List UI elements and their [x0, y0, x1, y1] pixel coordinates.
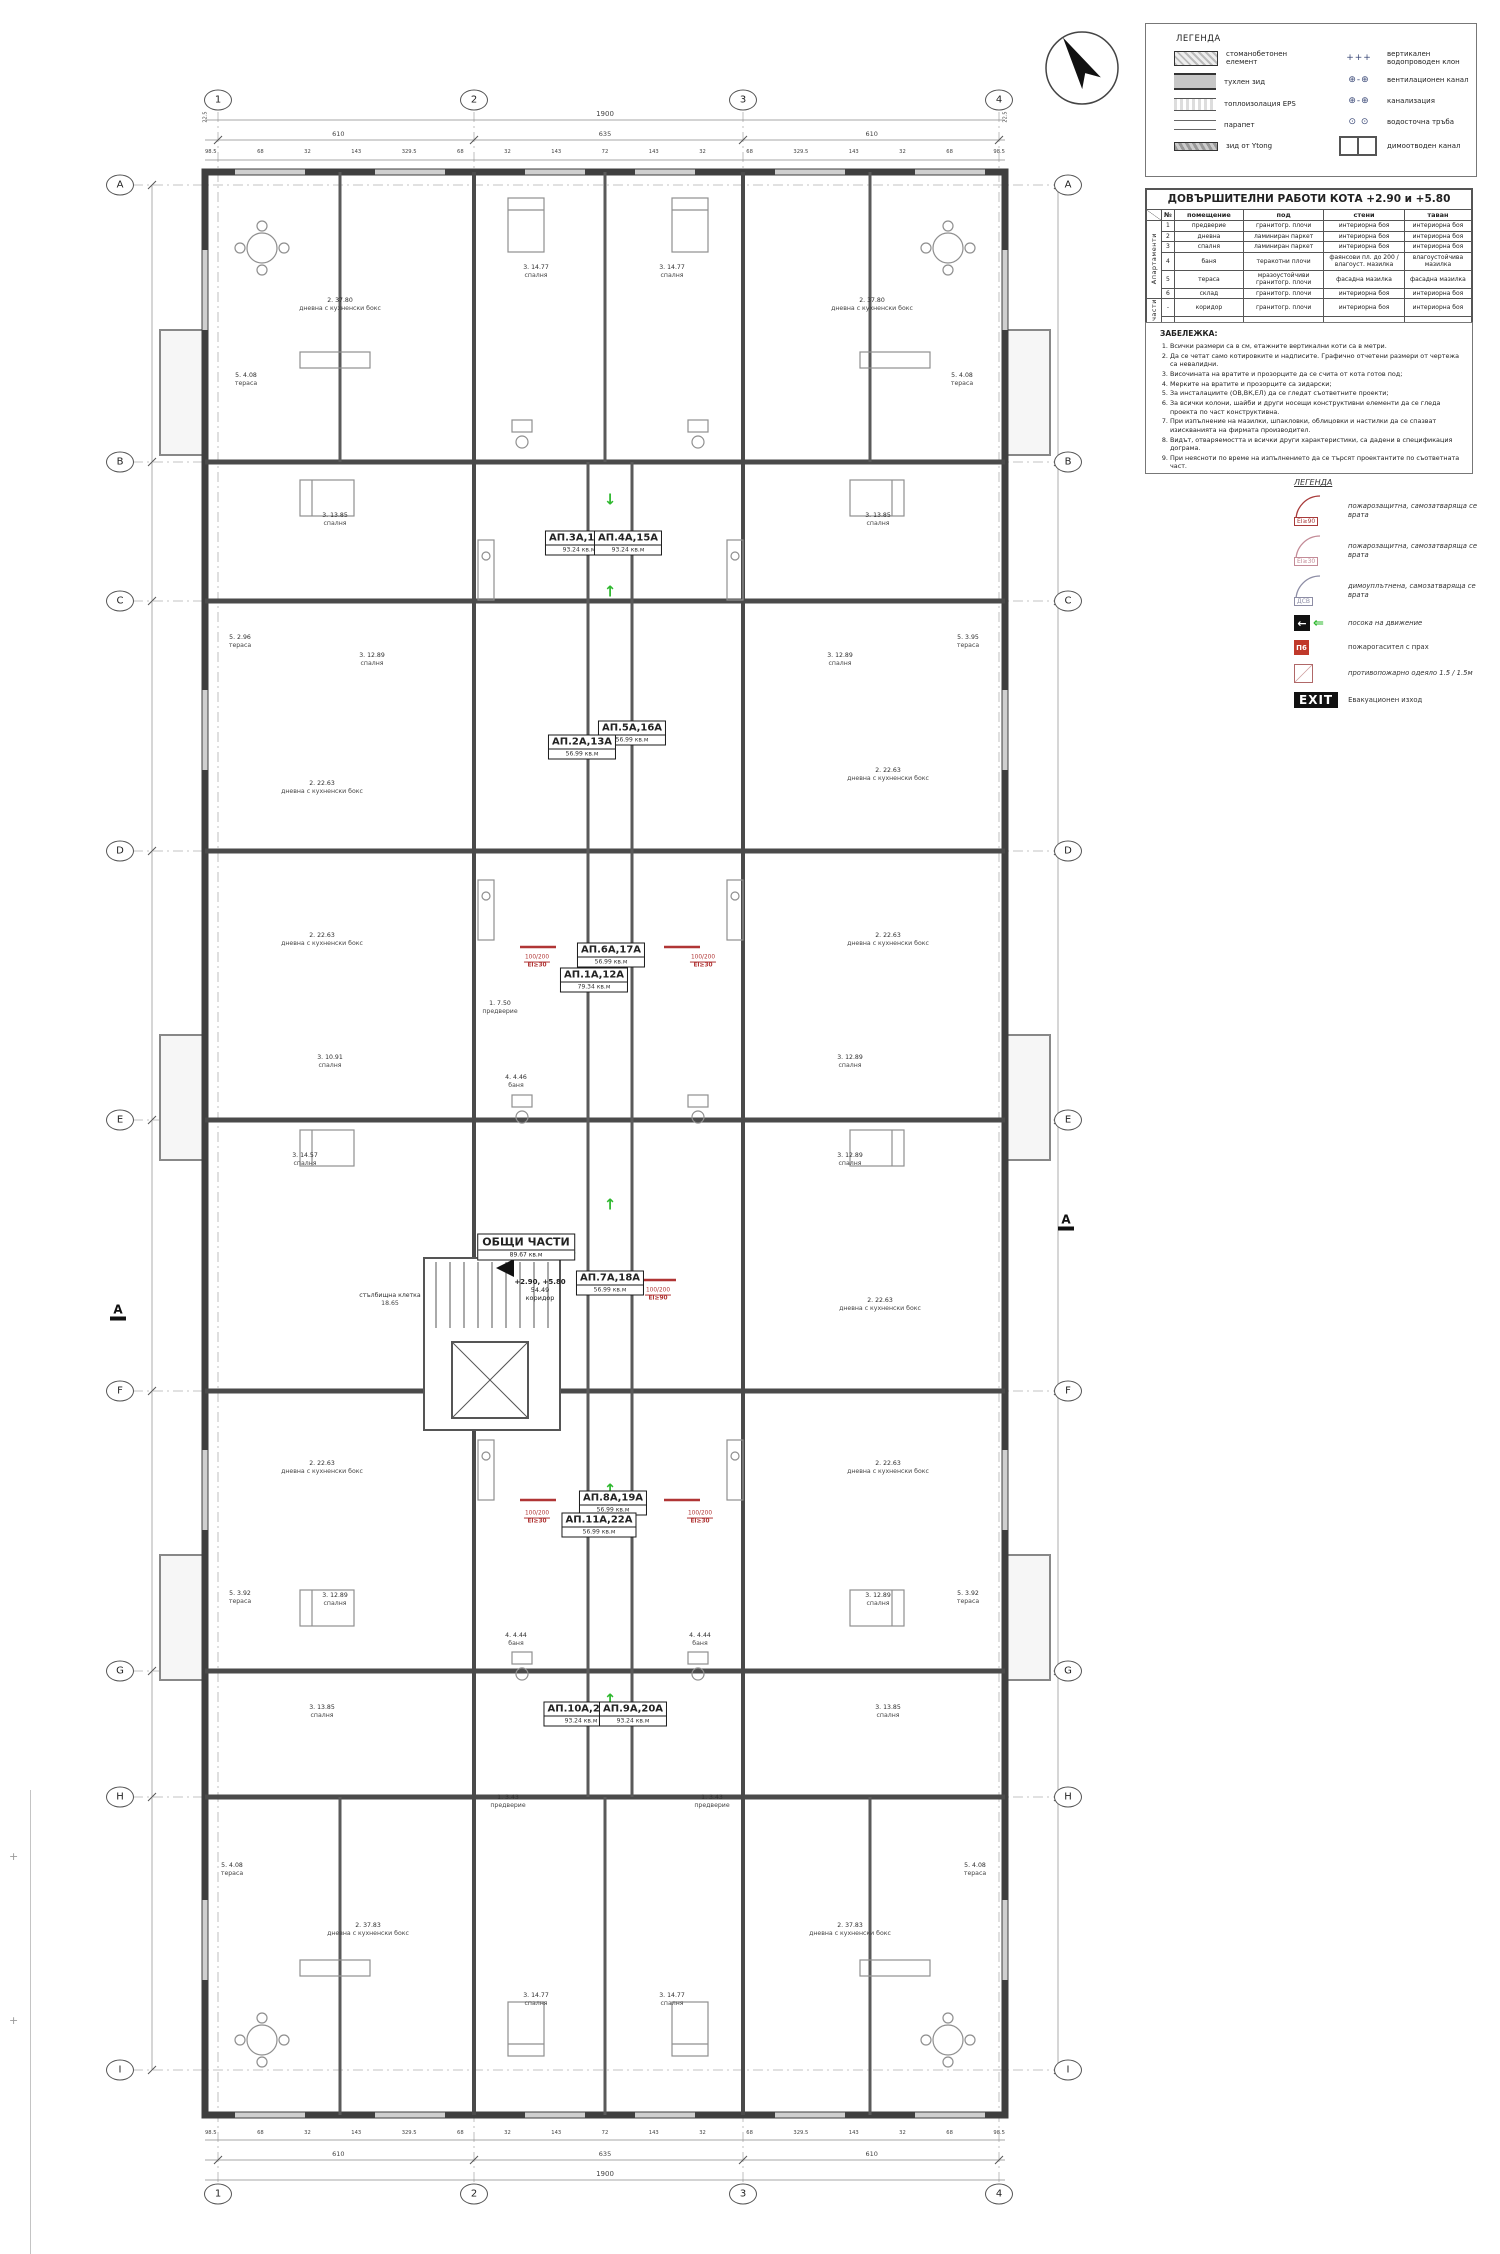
grid-bubble: B	[106, 452, 134, 473]
dim-value: 143	[551, 149, 561, 155]
dim-value: 68	[746, 149, 753, 155]
room-label: 2. 37.80 дневна с кухненски бокс	[299, 297, 381, 313]
grid-bubble: 1	[204, 90, 232, 111]
note-item: При неясноти по време на изпълнението да…	[1170, 454, 1466, 471]
note-item: За всички колони, шайби и други носещи к…	[1170, 399, 1466, 416]
grid-bubble: G	[1054, 1661, 1082, 1682]
legend-fire-safety: ЛЕГЕНДА EI≥90 пожарозащитна, самозатваря…	[1294, 478, 1494, 717]
dim-value: 72	[602, 2130, 609, 2136]
table-row: Апартаменти 1предверие гранитогр. плочии…	[1147, 221, 1472, 232]
direction-arrow-icon	[604, 1198, 617, 1213]
dim-value: 32	[699, 149, 706, 155]
grid-bubble: I	[1054, 2060, 1082, 2081]
apartment-number: АП.8А,19А	[580, 1492, 646, 1506]
apartment-area: 56.99 кв.м	[562, 1528, 635, 1537]
vent-symbol-icon: ⊕-⊕	[1339, 75, 1379, 85]
room-label: 3. 12.89 спалня	[837, 1054, 863, 1070]
room-label: 2. 22.63 дневна с кухненски бокс	[847, 1460, 929, 1476]
dim-value: 610	[205, 2150, 472, 2158]
dim-top-total: 1900	[205, 110, 1005, 118]
elevator	[452, 1342, 528, 1418]
dim-value: 329.5	[793, 149, 808, 155]
diagonal-header-cell	[1147, 210, 1162, 221]
note-item: Височината на вратите и прозорците да се…	[1170, 370, 1466, 379]
apartment-label: АП.4А,15А 93.24 кв.м	[594, 531, 662, 556]
section-marker: A	[110, 1304, 126, 1321]
room-label: 5. 3.92 тераса	[229, 1590, 251, 1606]
room-label: 5. 4.08 тераса	[235, 372, 257, 388]
room-label: 4. 4.44 баня	[689, 1632, 711, 1648]
room-label: 5. 4.08 тераса	[964, 1862, 986, 1878]
dim-value: 68	[457, 2130, 464, 2136]
grid-bubble: D	[1054, 841, 1082, 862]
dim-value: 68	[457, 149, 464, 155]
legend-materials: ЛЕГЕНДА стоманобетонен елемент тухлен зи…	[1145, 23, 1477, 177]
grid-bubble: D	[106, 841, 134, 862]
table-row: Общи части -коридор гранитогр. плочиинте…	[1147, 299, 1472, 317]
frame-cross-mark: +	[9, 1850, 18, 1863]
dim-value: 610	[205, 130, 472, 138]
room-label: стълбищна клетка 18.65	[359, 1292, 420, 1308]
sheet-frame-line	[30, 1790, 31, 2254]
room-label: 5. 4.08 тераса	[951, 372, 973, 388]
room-label: 5. 2.96 тераса	[229, 634, 251, 650]
dim-value: 68	[946, 149, 953, 155]
grid-bubble: I	[106, 2060, 134, 2081]
room-label: 2. 22.63 дневна с кухненски бокс	[839, 1297, 921, 1313]
dim-value: 143	[849, 149, 859, 155]
apartment-label: АП.1А,12А 79.34 кв.м	[560, 968, 628, 993]
dim-value: 610	[738, 130, 1005, 138]
notes-list: Всички размери са в см, етажните вертика…	[1170, 342, 1466, 471]
dim-value: 143	[649, 149, 659, 155]
legend-title: ЛЕГЕНДА	[1294, 478, 1494, 487]
fire-door-label: 100/200 EI≥90	[645, 1288, 671, 1303]
dim-value: 32	[504, 149, 511, 155]
fire-blanket-icon	[1294, 664, 1338, 683]
grid-bubble: 4	[985, 90, 1013, 111]
apartment-area: 56.99 кв.м	[549, 750, 615, 759]
room-label: 2. 37.83 дневна с кухненски бокс	[809, 1922, 891, 1938]
grid-bubble: F	[1054, 1381, 1082, 1402]
grid-bubble: H	[106, 1787, 134, 1808]
grid-bubble: 3	[729, 90, 757, 111]
dim-value: 32	[304, 2130, 311, 2136]
dim-value: 98.5	[993, 149, 1005, 155]
room-label: 1. 3.43 предверие	[490, 1794, 525, 1810]
note-item: Да се четат само котировките и надписите…	[1170, 352, 1466, 369]
dim-value: 72	[602, 149, 609, 155]
dim-bottom-mids: 610635610	[205, 2150, 1005, 2158]
legend-title: ЛЕГЕНДА	[1176, 34, 1476, 44]
entry-arrow	[496, 1259, 514, 1277]
fire-door-label: 100/200 EI≥30	[690, 955, 716, 970]
frame-cross-mark: +	[9, 2014, 18, 2027]
apartment-label: АП.2А,13А 56.99 кв.м	[548, 735, 616, 760]
dim-value: 143	[351, 149, 361, 155]
fire-door-label: 100/200 EI≥30	[524, 1511, 550, 1526]
table-title: ДОВЪРШИТЕЛНИ РАБОТИ КОТА +2.90 и +5.80	[1147, 190, 1472, 210]
grid-bubble: 2	[460, 2184, 488, 2205]
dim-value: 329.5	[402, 2130, 417, 2136]
dim-value: 68	[257, 2130, 264, 2136]
grid-bubble: 4	[985, 2184, 1013, 2205]
notes-title: ЗАБЕЛЕЖКА:	[1160, 329, 1472, 339]
apartment-number: АП.6А,17А	[578, 944, 644, 958]
note-item: Мерките на вратите и прозорците са зидар…	[1170, 380, 1466, 389]
dim-value: 143	[351, 2130, 361, 2136]
room-label: 3. 13.85 спалня	[865, 512, 891, 528]
table-row: 4баня теракотни плочифаянсови пл. до 200…	[1147, 252, 1472, 270]
grid-bubble: 2	[460, 90, 488, 111]
apartment-number: АП.1А,12А	[561, 969, 627, 983]
room-label: 3. 14.77 спалня	[523, 1992, 549, 2008]
fire-door-label: 100/200 EI≥30	[524, 955, 550, 970]
exit-sign-icon: EXIT	[1294, 692, 1338, 708]
dim-value: 68	[946, 2130, 953, 2136]
smoke-duct-symbol-icon	[1339, 136, 1379, 156]
apartment-number: АП.2А,13А	[549, 736, 615, 750]
dim-value: 143	[551, 2130, 561, 2136]
grid-bubble: C	[1054, 591, 1082, 612]
brick-swatch-icon	[1174, 73, 1216, 90]
riser-symbol-icon: +++	[1339, 53, 1379, 63]
dim-value: 32	[304, 149, 311, 155]
common-parts-label: ОБЩИ ЧАСТИ 89.67 кв.м	[477, 1234, 575, 1261]
apartment-area: 56.99 кв.м	[578, 958, 644, 967]
section-marker: A	[1058, 1214, 1074, 1231]
apartment-number: АП.9А,20А	[600, 1703, 666, 1717]
room-label: 4. 4.46 баня	[505, 1074, 527, 1090]
dim-value: 32	[504, 2130, 511, 2136]
dim-edge-right: 22.5	[1003, 111, 1009, 122]
note-item: При изпълнение на мазилки, шпакловки, об…	[1170, 417, 1466, 434]
common-parts-levels: +2.90, +5.80 54.49 коридор	[514, 1278, 565, 1302]
room-label: 3. 14.57 спалня	[292, 1152, 318, 1168]
room-label: 3. 12.89 спалня	[359, 652, 385, 668]
room-label: 1. 3.43 предверие	[694, 1794, 729, 1810]
dim-value: 98.5	[993, 2130, 1005, 2136]
dim-bottom-total: 1900	[205, 2170, 1005, 2178]
apartment-label: АП.9А,20А 93.24 кв.м	[599, 1702, 667, 1727]
room-label: 3. 12.89 спалня	[837, 1152, 863, 1168]
dim-edge-left: 22.5	[203, 111, 209, 122]
room-label: 2. 22.63 дневна с кухненски бокс	[847, 767, 929, 783]
dim-value: 32	[899, 2130, 906, 2136]
room-label: 3. 13.85 спалня	[875, 1704, 901, 1720]
room-label: 4. 4.44 баня	[505, 1632, 527, 1648]
room-label: 2. 37.83 дневна с кухненски бокс	[327, 1922, 409, 1938]
direction-of-movement-icon: ←⇐	[1294, 615, 1338, 631]
grid-bubble: A	[1054, 175, 1082, 196]
grid-bubble: B	[1054, 452, 1082, 473]
sewer-symbol-icon: ⊕-⊕	[1339, 96, 1379, 106]
grid-bubble: 1	[204, 2184, 232, 2205]
table-row: 6склад гранитогр. плочиинтериорна боя ин…	[1147, 288, 1472, 299]
grid-bubble: C	[106, 591, 134, 612]
room-label: 2. 22.63 дневна с кухненски бокс	[281, 780, 363, 796]
downpipe-symbol-icon: ⊙ ⊙	[1339, 117, 1379, 127]
apartment-area: 93.24 кв.м	[600, 1717, 666, 1726]
apartment-label: АП.7А,18А 56.99 кв.м	[576, 1271, 644, 1296]
dim-value: 329.5	[793, 2130, 808, 2136]
table-row: 3спалня ламиниран паркетинтериорна боя и…	[1147, 242, 1472, 253]
room-label: 3. 10.91 спалня	[317, 1054, 343, 1070]
fire-extinguisher-icon: П6	[1294, 640, 1338, 655]
apartment-area: 93.24 кв.м	[595, 546, 661, 555]
smoke-door-icon: ДСВ	[1294, 575, 1338, 606]
grid-bubble: F	[106, 1381, 134, 1402]
room-label: 5. 4.08 тераса	[221, 1862, 243, 1878]
direction-arrow-icon	[604, 585, 617, 600]
drawing-sheet: 1234 1234 ABCDEFGHI ABCDEFGHI 1900 61063…	[0, 0, 1500, 2254]
grid-bubble: H	[1054, 1787, 1082, 1808]
room-label: 3. 12.89 спалня	[322, 1592, 348, 1608]
grid-bubble: G	[106, 1661, 134, 1682]
dim-value: 32	[899, 149, 906, 155]
dim-value: 32	[699, 2130, 706, 2136]
parapet-swatch-icon	[1174, 120, 1216, 130]
room-label: 5. 3.92 тераса	[957, 1590, 979, 1606]
room-label: 3. 13.85 спалня	[309, 1704, 335, 1720]
dim-value: 98.5	[205, 149, 217, 155]
apartment-number: АП.5А,16А	[599, 722, 665, 736]
dim-value: 329.5	[402, 149, 417, 155]
fire-door-label: 100/200 EI≥30	[687, 1511, 713, 1526]
room-label: 1. 7.50 предверие	[482, 1000, 517, 1016]
apartment-label: АП.11А,22А 56.99 кв.м	[561, 1513, 636, 1538]
dim-top-mids: 610635610	[205, 130, 1005, 138]
dim-top-chain: 98.56832143329.56832143721433268329.5143…	[205, 149, 1005, 155]
direction-arrow-icon	[604, 493, 617, 508]
apartment-area: 79.34 кв.м	[561, 983, 627, 992]
north-arrow	[1046, 32, 1118, 104]
room-label: 5. 3.95 тераса	[957, 634, 979, 650]
apartment-number: АП.4А,15А	[595, 532, 661, 546]
fire-door-ei90-icon: EI≥90	[1294, 495, 1338, 526]
note-item: Видът, отваряемостта и всички други хара…	[1170, 436, 1466, 453]
dim-value: 635	[472, 2150, 739, 2158]
room-label: 2. 37.80 дневна с кухненски бокс	[831, 297, 913, 313]
room-label: 3. 13.85 спалня	[322, 512, 348, 528]
notes-panel: ЗАБЕЛЕЖКА: Всички размери са в см, етажн…	[1145, 322, 1473, 474]
grid-bubble: 3	[729, 2184, 757, 2205]
apartment-label: АП.6А,17А 56.99 кв.м	[577, 943, 645, 968]
ytong-swatch-icon	[1174, 142, 1218, 151]
room-label: 2. 22.63 дневна с кухненски бокс	[281, 1460, 363, 1476]
room-label: 3. 12.89 спалня	[865, 1592, 891, 1608]
grid-bubble: E	[1054, 1110, 1082, 1131]
dim-value: 68	[257, 149, 264, 155]
grid-bubble: A	[106, 175, 134, 196]
room-label: 3. 14.77 спалня	[659, 264, 685, 280]
table-row: 2дневна ламиниран паркетинтериорна боя и…	[1147, 231, 1472, 242]
dim-value: 143	[849, 2130, 859, 2136]
dim-value: 610	[738, 2150, 1005, 2158]
room-label: 2. 22.63 дневна с кухненски бокс	[847, 932, 929, 948]
room-label: 3. 14.77 спалня	[523, 264, 549, 280]
dim-value: 98.5	[205, 2130, 217, 2136]
dim-value: 635	[472, 130, 739, 138]
apartment-area: 56.99 кв.м	[577, 1286, 643, 1295]
apartment-number: АП.11А,22А	[562, 1514, 635, 1528]
note-item: Всички размери са в см, етажните вертика…	[1170, 342, 1466, 351]
note-item: За инсталациите (ОВ,ВК,ЕЛ) да се гледат …	[1170, 389, 1466, 398]
dim-value: 68	[746, 2130, 753, 2136]
dim-value: 143	[649, 2130, 659, 2136]
room-label: 3. 14.77 спалня	[659, 1992, 685, 2008]
fire-door-ei30-icon: EI≥30	[1294, 535, 1338, 566]
room-label: 3. 12.89 спалня	[827, 652, 853, 668]
eps-swatch-icon	[1174, 98, 1216, 111]
grid-bubble: E	[106, 1110, 134, 1131]
apartment-number: АП.7А,18А	[577, 1272, 643, 1286]
room-label: 2. 22.63 дневна с кухненски бокс	[281, 932, 363, 948]
concrete-swatch-icon	[1174, 51, 1218, 66]
table-row: 5тераса мразоустойчиви гранитогр. плочиф…	[1147, 270, 1472, 288]
dim-bottom-chain: 98.56832143329.56832143721433268329.5143…	[205, 2130, 1005, 2136]
